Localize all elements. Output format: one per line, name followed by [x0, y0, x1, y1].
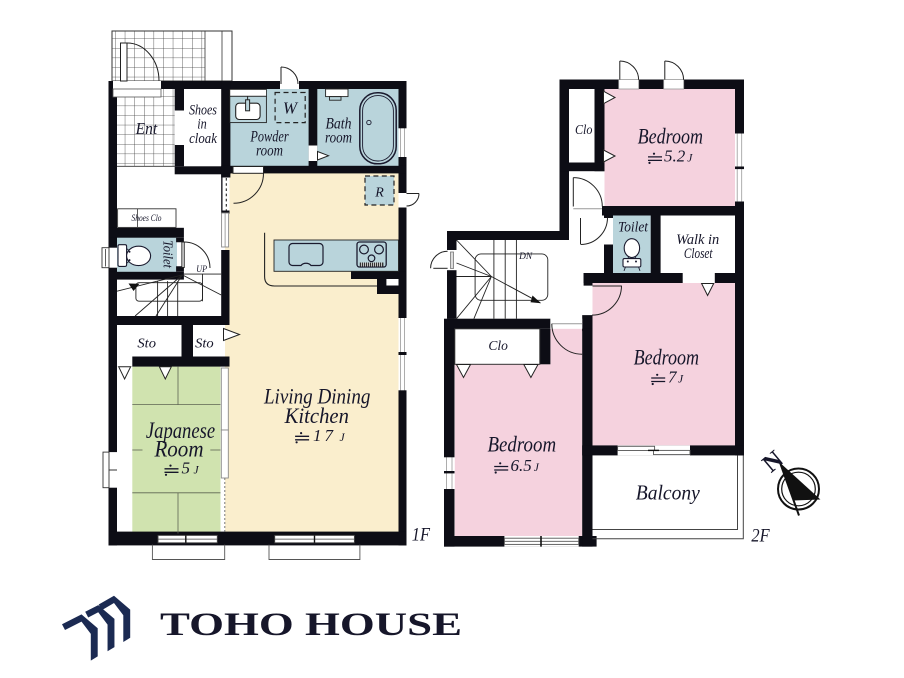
svg-text:Sto: Sto: [137, 336, 156, 351]
svg-text:W: W: [283, 99, 299, 118]
svg-text:1F: 1F: [412, 525, 431, 546]
svg-text:Shoes Clo: Shoes Clo: [132, 214, 162, 224]
svg-text:TOHO HOUSE: TOHO HOUSE: [160, 607, 462, 643]
svg-text:Sto: Sto: [195, 336, 214, 351]
svg-text:Toilet: Toilet: [160, 240, 175, 269]
svg-text:DN: DN: [518, 252, 533, 262]
svg-text:Balcony: Balcony: [636, 481, 701, 505]
svg-text:2F: 2F: [751, 525, 770, 546]
svg-text:Bedroom: Bedroom: [638, 124, 703, 149]
svg-text:Clo: Clo: [488, 339, 508, 354]
svg-text:room: room: [325, 130, 352, 147]
svg-text:UP: UP: [196, 265, 207, 275]
svg-text:Bedroom: Bedroom: [634, 345, 699, 370]
svg-text:cloak: cloak: [189, 131, 217, 147]
svg-text:room: room: [256, 143, 283, 160]
svg-text:Closet: Closet: [684, 246, 713, 262]
svg-text:Kitchen: Kitchen: [284, 403, 349, 428]
svg-text:R: R: [374, 186, 384, 201]
svg-text:Clo: Clo: [575, 123, 593, 138]
svg-text:Bedroom: Bedroom: [488, 431, 557, 456]
svg-text:Ent: Ent: [135, 119, 159, 138]
svg-text:Toilet: Toilet: [618, 220, 649, 236]
svg-text:Room: Room: [154, 437, 204, 462]
